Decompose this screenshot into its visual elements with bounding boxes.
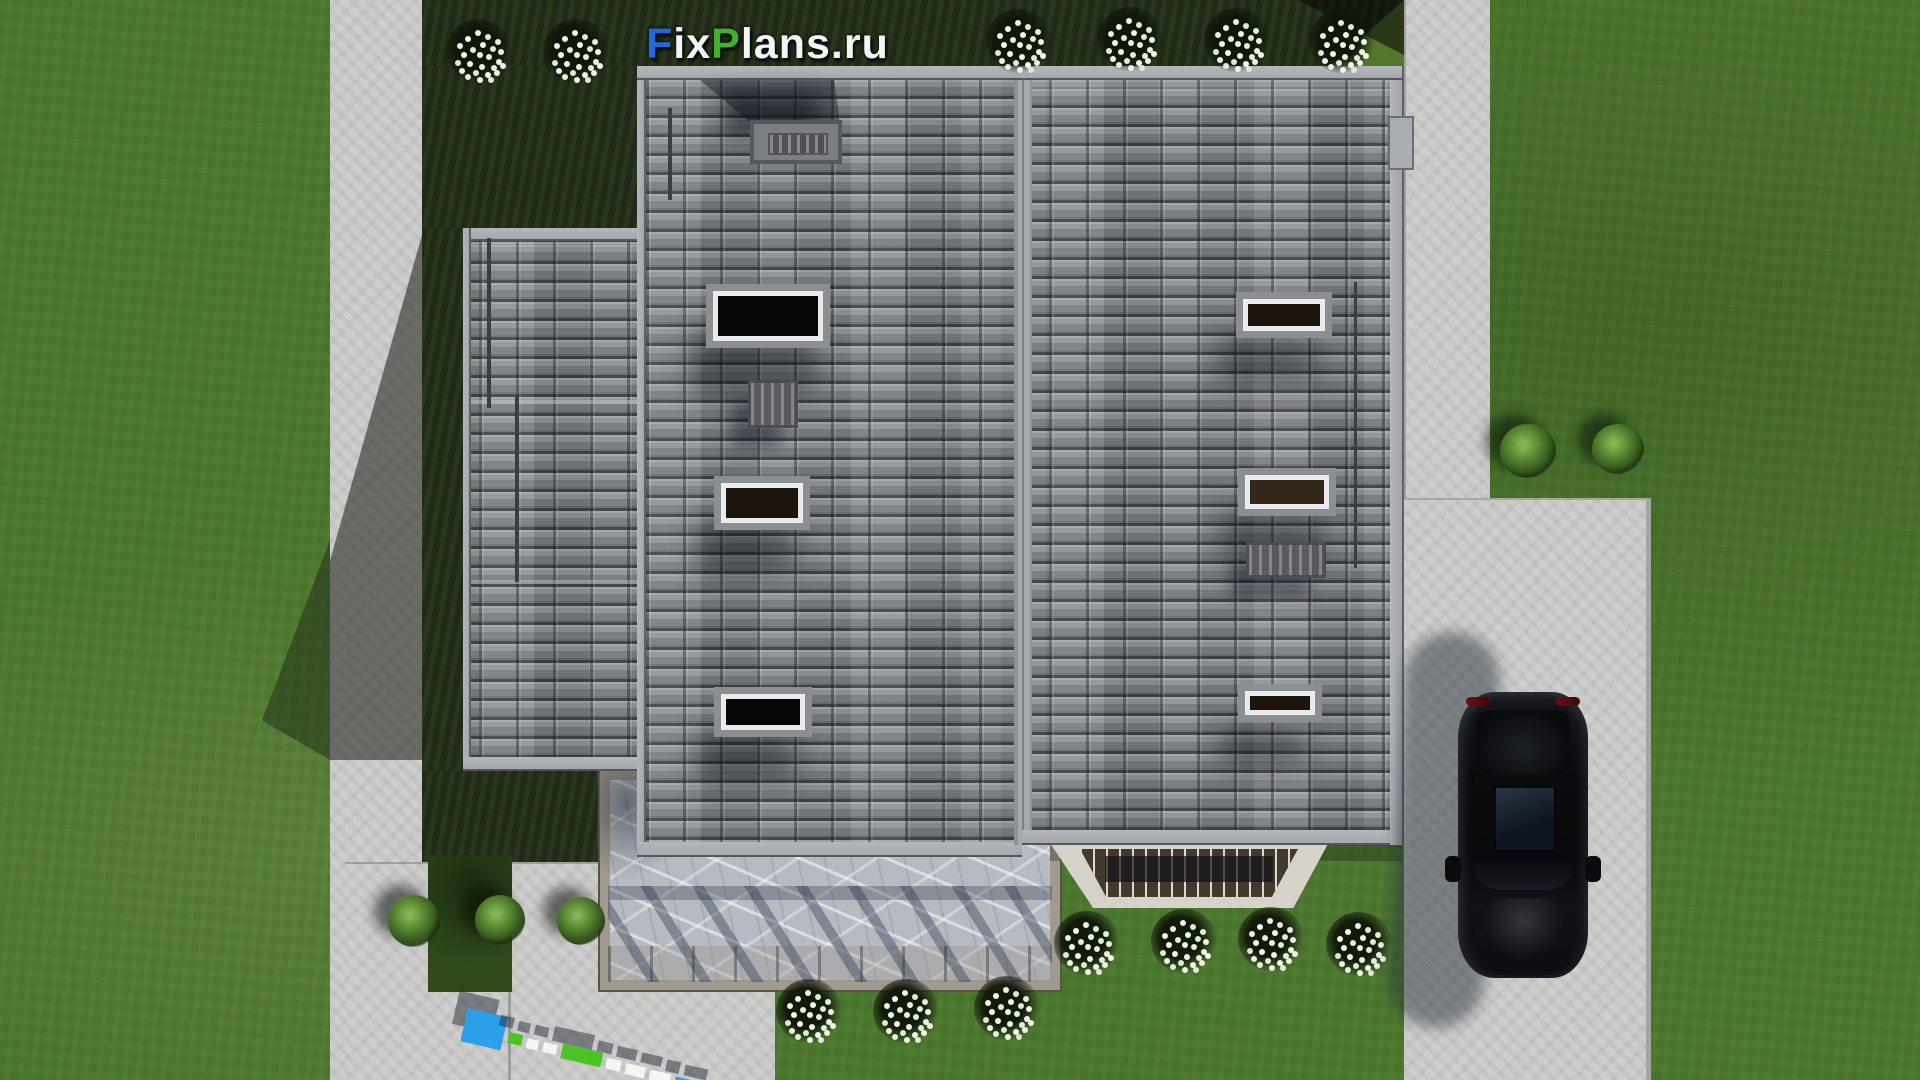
ground-watermark-block xyxy=(673,1077,689,1080)
flower-blooms xyxy=(904,1012,910,1018)
roof-vent xyxy=(748,380,798,428)
ground-watermark-block xyxy=(525,1038,539,1051)
main-roof-fascia-left xyxy=(637,66,646,857)
shrub xyxy=(1500,424,1556,478)
flower-bed xyxy=(1157,917,1213,973)
flower-blooms xyxy=(1235,41,1241,47)
skylight xyxy=(1236,292,1332,338)
logo-segment: F xyxy=(646,20,673,68)
car-taillight-right xyxy=(1556,697,1580,706)
main-roof-right-section xyxy=(1032,80,1390,830)
flower-blooms xyxy=(1128,40,1134,46)
car-windshield xyxy=(1472,852,1574,890)
skylight xyxy=(1238,468,1336,516)
flower-bed xyxy=(992,17,1048,73)
ground-watermark-block xyxy=(560,1043,603,1067)
skylight-glass xyxy=(1245,475,1329,509)
logo-segment: .ru xyxy=(831,20,889,68)
flower-blooms xyxy=(1357,945,1363,951)
flower-blooms xyxy=(1269,940,1275,946)
aerial-render-scene: FixPlans.ru xyxy=(0,0,1920,1080)
wing-roof-seam xyxy=(471,400,637,404)
skylight xyxy=(1238,684,1322,722)
main-roof-fascia-bottom-right xyxy=(1022,830,1402,845)
ground-watermark-block xyxy=(605,1058,623,1072)
logo-segment: ix xyxy=(673,20,711,68)
shrub xyxy=(475,895,525,945)
flower-bed xyxy=(1315,17,1371,73)
flower-bed xyxy=(1244,915,1300,971)
flower-blooms xyxy=(1085,944,1091,950)
car-sunroof xyxy=(1494,786,1556,852)
roof-valley xyxy=(1014,66,1032,845)
flower-bed xyxy=(1210,16,1266,72)
flower-blooms xyxy=(1182,942,1188,948)
wing-roof-fascia-left xyxy=(463,228,471,771)
logo-segment: lans xyxy=(741,20,831,68)
snow-guard xyxy=(1354,282,1357,568)
flower-bed xyxy=(879,987,935,1043)
shrub xyxy=(557,897,605,945)
right-path xyxy=(1404,0,1490,510)
ground-watermark-block xyxy=(625,1063,646,1078)
shrub xyxy=(1592,424,1644,474)
flower-blooms xyxy=(1340,42,1346,48)
skylight-glass xyxy=(713,291,823,341)
flower-bed xyxy=(1103,15,1159,71)
flower-blooms xyxy=(574,52,580,58)
grass-shadow-left-upper xyxy=(422,66,637,228)
grass-shadow-left-strip xyxy=(422,228,463,771)
flower-bed xyxy=(1060,919,1116,975)
skylight xyxy=(706,284,830,348)
chimney xyxy=(750,120,842,164)
flower-bed xyxy=(549,27,605,83)
logo-segment: P xyxy=(711,20,741,68)
porch-inner-shadow xyxy=(1105,856,1273,882)
main-roof-left-section xyxy=(646,80,1014,842)
car-mirror-left xyxy=(1445,856,1461,882)
fixplans-logo: FixPlans.ru xyxy=(646,20,889,69)
flower-blooms xyxy=(1005,1009,1011,1015)
ground-watermark-block xyxy=(648,1070,671,1080)
car xyxy=(1458,692,1588,978)
car-taillight-left xyxy=(1466,697,1490,706)
skylight-glass xyxy=(1243,299,1325,331)
flower-blooms xyxy=(477,52,483,58)
flower-blooms xyxy=(807,1012,813,1018)
terrace-railing-shadow xyxy=(608,886,1052,982)
skylight-glass xyxy=(721,694,805,730)
ground-watermark-block xyxy=(507,1032,523,1046)
wing-roof-fascia-bottom xyxy=(463,757,637,771)
skylight xyxy=(714,687,812,737)
roof-edge-step xyxy=(1388,116,1414,170)
snow-guard xyxy=(515,396,519,582)
car-mirror-right xyxy=(1585,856,1601,882)
flower-bed xyxy=(980,984,1036,1040)
wing-roof xyxy=(471,241,637,757)
chimney-cap xyxy=(768,133,828,155)
ground-watermark-block xyxy=(542,1042,558,1055)
flower-bed xyxy=(782,987,838,1043)
car-rear-window xyxy=(1476,710,1570,774)
skylight xyxy=(714,476,810,530)
car-hood-highlight xyxy=(1476,898,1570,964)
snow-guard xyxy=(487,238,491,408)
roof-vent xyxy=(1246,542,1326,578)
skylight-glass xyxy=(1245,691,1315,715)
shrub xyxy=(388,895,440,947)
snow-guard xyxy=(668,108,672,200)
main-roof-fascia-bottom-left xyxy=(637,842,1022,857)
wing-roof-seam xyxy=(471,580,637,584)
skylight-glass xyxy=(721,483,803,523)
flower-bed xyxy=(452,27,508,83)
flower-blooms xyxy=(1017,42,1023,48)
flower-bed xyxy=(1332,920,1388,976)
